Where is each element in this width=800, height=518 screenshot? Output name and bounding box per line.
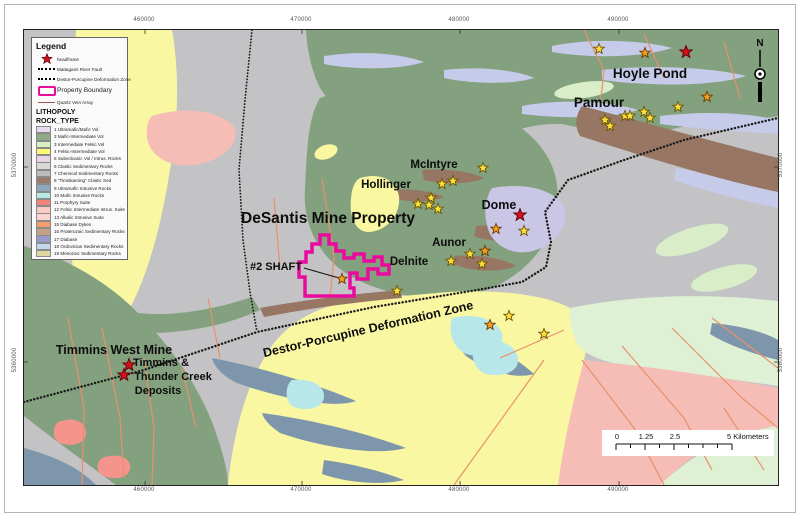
rock-type-label: 16 Proterozoic Sedimentary Rocks xyxy=(54,229,125,234)
legend-label: Property Boundary xyxy=(57,87,112,94)
coordinate-label: 5360000 xyxy=(778,338,784,382)
rock-type-item: 7 Chemical Sedimentary Rocks xyxy=(36,170,124,177)
rock-type-label: 17 Diabase xyxy=(54,237,77,242)
coordinate-label: 490000 xyxy=(596,487,640,493)
rock-type-item: 6 Clastic Sedimentary Rocks xyxy=(36,162,124,169)
scale-tick-label: 2.5 xyxy=(664,432,686,441)
legend-panel: Legend headframe Mattagami River Fault D… xyxy=(31,37,128,260)
dotted-line-heavy-icon xyxy=(36,78,57,80)
rock-type-label: 3 Intermediate Felsic Vol xyxy=(54,142,104,147)
quartz-vein-line-icon xyxy=(36,102,57,103)
rock-type-label: 18 Ordovician Sedimentary Rocks xyxy=(54,244,123,249)
map-label-dome: Dome xyxy=(482,198,517,212)
coordinate-label: 460000 xyxy=(122,487,166,493)
coordinate-label: 470000 xyxy=(279,487,323,493)
map-label-delnite: Delnite xyxy=(390,256,428,268)
legend-item-mattagami-fault: Mattagami River Fault xyxy=(36,64,124,74)
rock-type-item: 10 Mafic Intrusive Rocks xyxy=(36,192,124,199)
rock-type-item: 18 Ordovician Sedimentary Rocks xyxy=(36,243,124,250)
map-label-desantis: DeSantis Mine Property xyxy=(241,210,415,227)
rock-type-label: 1 Ultramafic/Mafic Vol xyxy=(54,127,98,132)
rock-type-item: 11 Porphyry Suite xyxy=(36,199,124,206)
rock-type-item: 13 Alkalic Intrusive Suite xyxy=(36,214,124,221)
scale-tick-label: 0 xyxy=(606,432,628,441)
map-label-pamour: Pamour xyxy=(574,95,625,110)
rock-type-label: 6 Clastic Sedimentary Rocks xyxy=(54,164,113,169)
map-label-aunor: Aunor xyxy=(432,237,466,249)
geology-map-canvas: Hoyle PondPamourMcIntyreHollingerDomeAun… xyxy=(24,30,778,485)
rock-type-item: 4 Felsic-Intermediate Vol xyxy=(36,148,124,155)
scale-bar: 0 1.25 2.5 5 Kilometers xyxy=(602,430,774,456)
rock-type-label: 12 Felsic Intermediate Intrus. Suite xyxy=(54,207,125,212)
figure-border: Hoyle PondPamourMcIntyreHollingerDomeAun… xyxy=(4,4,796,513)
coordinate-label: 5370000 xyxy=(12,143,18,187)
legend-item-property-boundary: Property Boundary xyxy=(36,84,124,97)
coordinate-label: 5370000 xyxy=(778,143,784,187)
rock-type-item: 1 Ultramafic/Mafic Vol xyxy=(36,126,124,133)
scale-tick-label: 1.25 xyxy=(635,432,657,441)
scale-end-label: 5 Kilometers xyxy=(727,432,769,441)
map-label-shaft: #2 SHAFT xyxy=(250,261,302,273)
rock-type-label: 13 Alkalic Intrusive Suite xyxy=(54,215,104,220)
rock-type-item: 8 "Timiskaming" Clastic Sed xyxy=(36,177,124,184)
rock-type-item: 19 Mesozoic Sedimentary Rocks xyxy=(36,250,124,257)
property-boundary-icon xyxy=(36,86,57,96)
map-label-mcintyre: McIntyre xyxy=(410,159,457,171)
legend-item-headframe: headframe xyxy=(36,54,124,64)
legend-item-dpdz: Destor-Porcupine Deformation Zone xyxy=(36,74,124,84)
rock-type-label: 5 Subvolcanic Vol / Intrus. Rocks xyxy=(54,156,121,161)
legend-item-quartz-vein: Quartz Vein Array xyxy=(36,97,124,107)
legend-label: headframe xyxy=(57,57,79,62)
rock-type-swatch xyxy=(36,250,51,258)
map-label-timmins-west: Timmins West Mine xyxy=(56,343,172,357)
rock-type-label: 2 Mafic-Intermediate Vol xyxy=(54,134,104,139)
lithopoly-title: LITHOPOLY xyxy=(36,109,124,116)
rock-type-item: 9 Ultramafic Intrusive Rocks xyxy=(36,184,124,191)
map-label-tc-line3: Deposits xyxy=(135,385,181,397)
rock-type-label: 7 Chemical Sedimentary Rocks xyxy=(54,171,118,176)
coordinate-label: 480000 xyxy=(437,487,481,493)
rock-type-item: 12 Felsic Intermediate Intrus. Suite xyxy=(36,206,124,213)
map-label-tc-line1: Timmins & xyxy=(133,357,189,369)
map-figure: Hoyle PondPamourMcIntyreHollingerDomeAun… xyxy=(1,1,800,518)
map-label-hollinger: Hollinger xyxy=(361,179,411,191)
rock-type-label: 4 Felsic-Intermediate Vol xyxy=(54,149,105,154)
coordinate-label: 490000 xyxy=(596,17,640,23)
coordinate-label: 470000 xyxy=(279,17,323,23)
rock-type-title: ROCK_TYPE xyxy=(36,118,124,125)
rock-type-item: 17 Diabase xyxy=(36,235,124,242)
rock-type-label: 15 Diabase Dykes xyxy=(54,222,91,227)
rock-type-item: 15 Diabase Dykes xyxy=(36,221,124,228)
scale-ruler xyxy=(602,443,774,453)
rock-type-label: 10 Mafic Intrusive Rocks xyxy=(54,193,104,198)
rock-type-item: 5 Subvolcanic Vol / Intrus. Rocks xyxy=(36,155,124,162)
rock-type-label: 11 Porphyry Suite xyxy=(54,200,90,205)
coordinate-label: 480000 xyxy=(437,17,481,23)
coordinate-label: 5360000 xyxy=(12,338,18,382)
legend-label: Quartz Vein Array xyxy=(57,100,93,105)
legend-label: Destor-Porcupine Deformation Zone xyxy=(57,77,131,82)
rock-type-label: 8 "Timiskaming" Clastic Sed xyxy=(54,178,111,183)
map-frame: Hoyle PondPamourMcIntyreHollingerDomeAun… xyxy=(23,29,779,486)
rock-type-label: 9 Ultramafic Intrusive Rocks xyxy=(54,186,111,191)
rock-type-label: 19 Mesozoic Sedimentary Rocks xyxy=(54,251,121,256)
map-label-north: N xyxy=(756,38,763,49)
map-label-tc-line2: Thunder Creek xyxy=(134,371,213,383)
rock-type-item: 16 Proterozoic Sedimentary Rocks xyxy=(36,228,124,235)
coordinate-label: 460000 xyxy=(122,17,166,23)
legend-title: Legend xyxy=(36,41,124,51)
red-star-icon xyxy=(36,53,57,65)
dotted-line-icon xyxy=(36,68,57,70)
legend-label: Mattagami River Fault xyxy=(57,67,102,72)
map-label-hoyle-pond: Hoyle Pond xyxy=(613,66,687,81)
rock-type-list: 1 Ultramafic/Mafic Vol2 Mafic-Intermedia… xyxy=(36,126,124,257)
rock-type-item: 2 Mafic-Intermediate Vol xyxy=(36,133,124,140)
rock-type-item: 3 Intermediate Felsic Vol xyxy=(36,141,124,148)
